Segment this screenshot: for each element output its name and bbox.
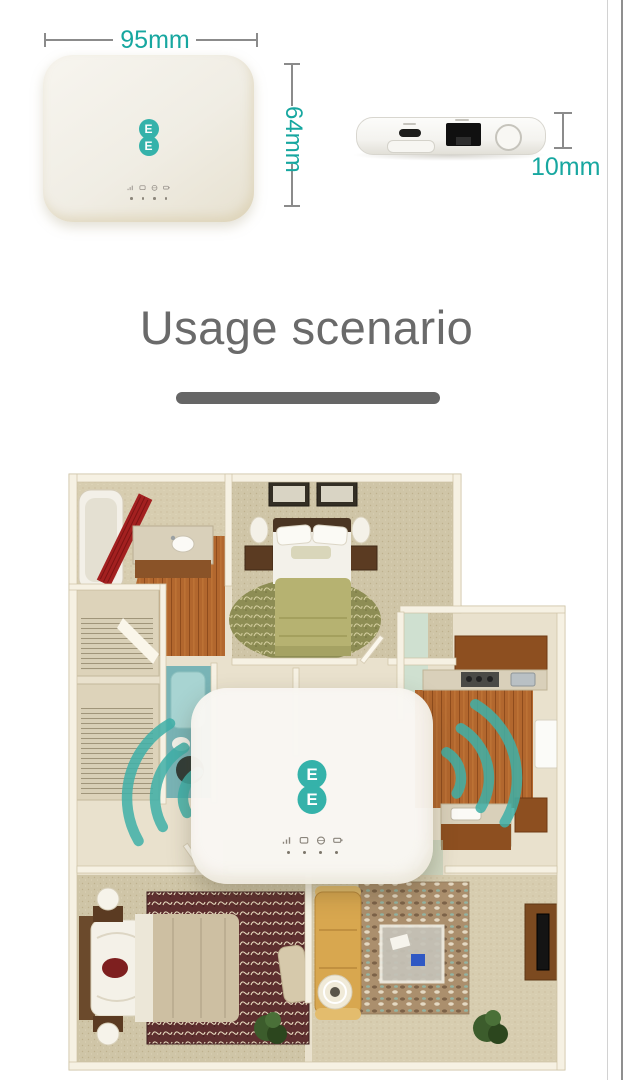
ee-logo-circle-bottom: E	[139, 136, 159, 156]
page-border-line	[607, 0, 608, 1080]
usb-port-label-mark	[403, 123, 416, 125]
height-dimension-tick-top	[284, 63, 300, 65]
width-dimension-line-right	[196, 39, 257, 41]
battery-icon	[163, 184, 170, 191]
depth-dimension-tick-bottom	[554, 147, 572, 149]
router-on-floorplan: E E	[191, 688, 433, 884]
sim-slot	[387, 140, 435, 153]
power-button	[495, 124, 522, 151]
depth-dimension-tick-top	[554, 112, 572, 114]
height-dimension-line-top	[291, 64, 293, 106]
depth-dimension-label: 10mm	[531, 153, 595, 182]
status-indicator-row	[191, 835, 433, 845]
signal-icon	[282, 835, 292, 845]
lan-port	[446, 123, 481, 146]
sms-icon	[299, 835, 309, 845]
wifi-icon	[151, 184, 158, 191]
depth-dimension-line	[562, 113, 564, 149]
status-indicator-row	[43, 184, 254, 191]
height-dimension-tick-bottom	[284, 205, 300, 207]
router-side-view	[356, 117, 546, 155]
height-dimension-label: 64mm	[279, 106, 307, 173]
lan-port-pins	[456, 137, 471, 145]
status-dots	[191, 851, 433, 854]
section-divider-bar	[176, 392, 440, 404]
ee-logo-circle-bottom: E	[298, 785, 327, 814]
section-title: Usage scenario	[0, 300, 618, 355]
ee-logo: E E	[139, 119, 159, 156]
battery-icon	[333, 835, 343, 845]
lan-port-label-mark	[455, 119, 469, 121]
width-dimension-label: 95mm	[112, 26, 198, 55]
wifi-icon	[316, 835, 326, 845]
router-front-view: E E	[43, 55, 254, 222]
product-infographic-page: 95mm 64mm E E 10mm Usage scenario	[0, 0, 623, 1080]
width-dimension-tick-right	[256, 33, 258, 47]
status-dots	[43, 197, 254, 200]
sms-icon	[139, 184, 146, 191]
usb-c-port	[399, 129, 421, 137]
signal-icon	[127, 184, 134, 191]
width-dimension-line-left	[45, 39, 113, 41]
ee-logo: E E	[298, 760, 327, 814]
width-dimension-tick-left	[44, 33, 46, 47]
